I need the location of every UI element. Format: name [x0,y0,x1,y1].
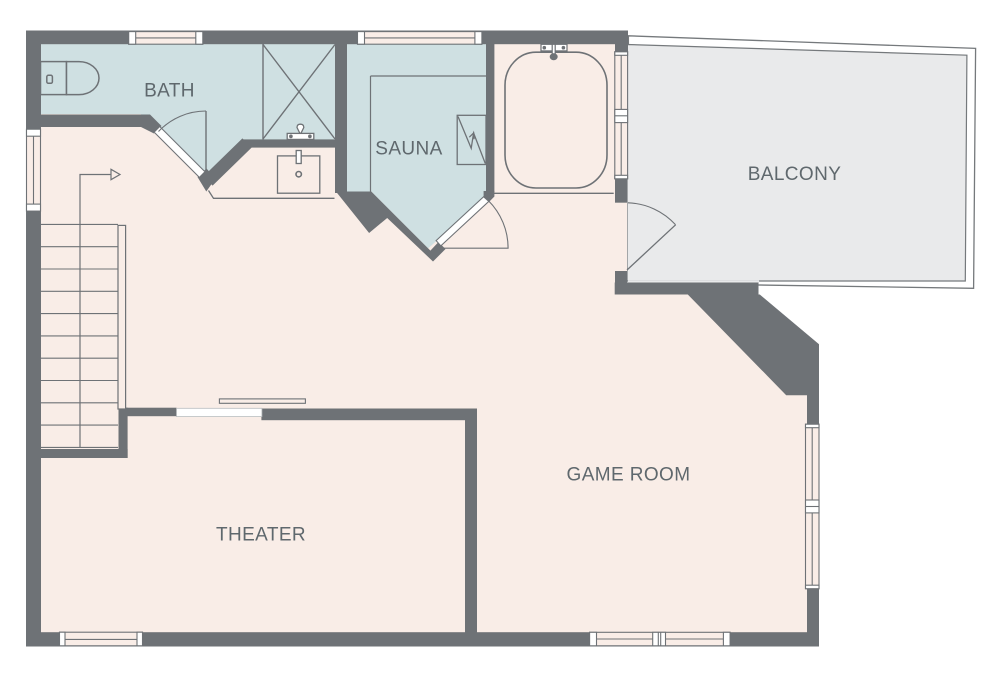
svg-text:THEATER: THEATER [216,525,306,546]
svg-text:BALCONY: BALCONY [748,164,842,185]
svg-text:BATH: BATH [144,81,195,102]
svg-text:GAME ROOM: GAME ROOM [567,465,691,486]
svg-text:SAUNA: SAUNA [375,139,442,160]
